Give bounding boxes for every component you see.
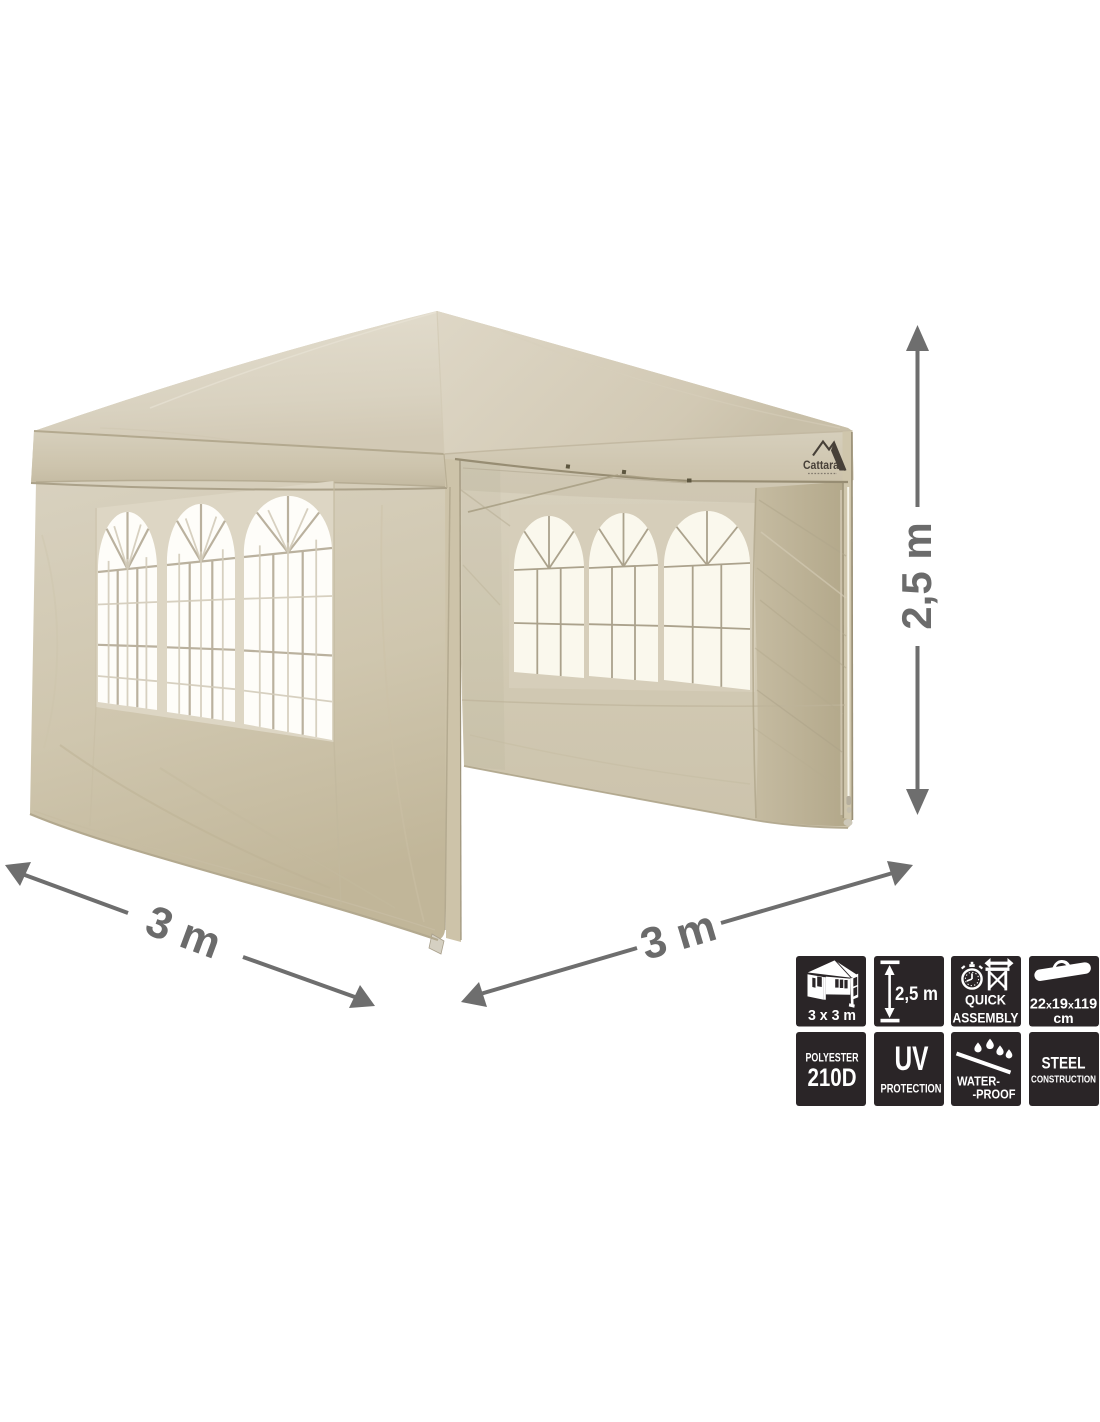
svg-text:STEEL: STEEL	[1042, 1055, 1086, 1073]
svg-text:-PROOF: -PROOF	[973, 1087, 1016, 1102]
svg-text:ASSEMBLY: ASSEMBLY	[953, 1011, 1019, 1026]
svg-text:2,5 m: 2,5 m	[893, 522, 940, 629]
svg-text:POLYESTER: POLYESTER	[806, 1053, 860, 1065]
svg-text:3 x 3 m: 3 x 3 m	[808, 1007, 856, 1024]
svg-text:QUICK: QUICK	[965, 993, 1006, 1008]
svg-text:UV: UV	[895, 1040, 929, 1078]
svg-text:PROTECTION: PROTECTION	[881, 1082, 942, 1096]
svg-text:2,5 m: 2,5 m	[895, 983, 938, 1005]
svg-text:3 m: 3 m	[635, 901, 722, 970]
svg-text:Cattara: Cattara	[803, 460, 840, 472]
svg-text:210D: 210D	[808, 1064, 857, 1092]
svg-text:3 m: 3 m	[139, 896, 227, 968]
svg-text:CONSTRUCTION: CONSTRUCTION	[1031, 1075, 1096, 1086]
svg-text:cm: cm	[1053, 1010, 1073, 1026]
